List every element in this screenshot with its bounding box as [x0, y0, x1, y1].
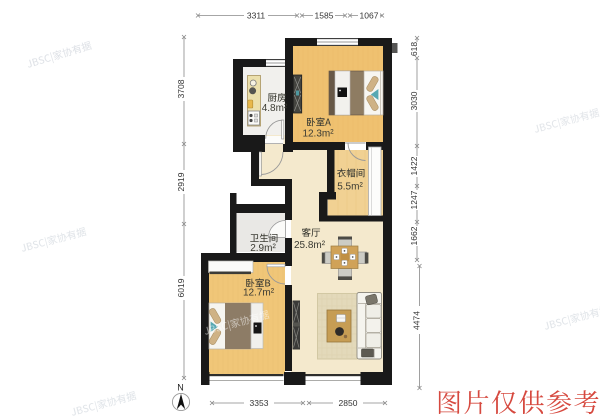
svg-text:1067: 1067 [360, 11, 379, 21]
svg-text:4474: 4474 [412, 311, 422, 330]
svg-text:N: N [177, 383, 184, 393]
svg-text:1662: 1662 [409, 226, 419, 245]
svg-text:25.8m²: 25.8m² [294, 240, 326, 251]
svg-text:3311: 3311 [247, 11, 266, 21]
svg-text:6019: 6019 [176, 278, 186, 297]
svg-text:618: 618 [409, 42, 419, 56]
svg-text:1422: 1422 [409, 156, 419, 175]
svg-text:5.5m²: 5.5m² [337, 182, 363, 193]
svg-text:1585: 1585 [315, 11, 334, 21]
svg-text:1247: 1247 [409, 190, 419, 209]
svg-text:2850: 2850 [339, 398, 358, 408]
svg-text:12.3m²: 12.3m² [302, 129, 334, 140]
svg-text:3030: 3030 [409, 91, 419, 110]
svg-text:3708: 3708 [176, 79, 186, 98]
svg-text:2.9m²: 2.9m² [250, 243, 276, 254]
svg-text:3353: 3353 [250, 398, 269, 408]
svg-text:12.7m²: 12.7m² [243, 288, 275, 299]
svg-text:4.8m²: 4.8m² [262, 103, 288, 114]
svg-text:2919: 2919 [176, 172, 186, 191]
